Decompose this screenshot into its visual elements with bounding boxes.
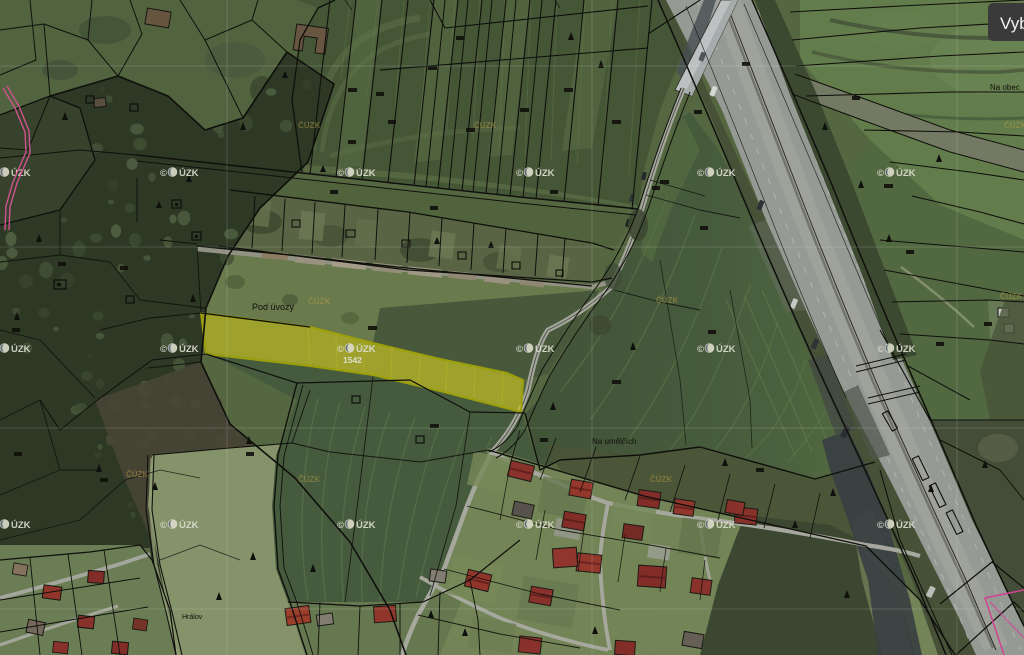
svg-text:Vyb: Vyb (1000, 14, 1024, 33)
